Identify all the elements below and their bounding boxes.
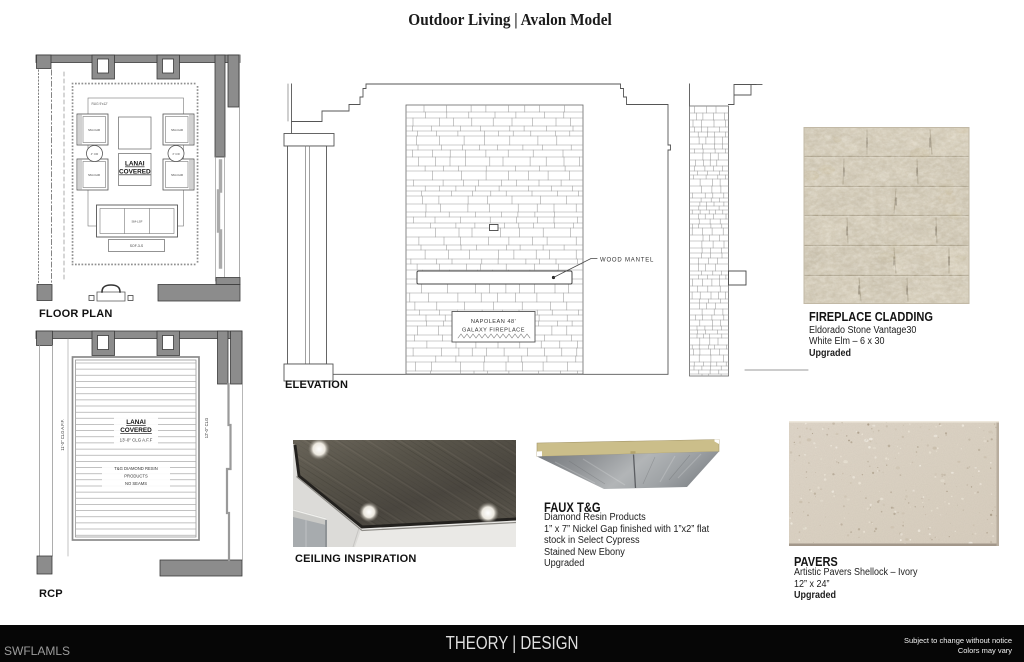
svg-text:NAPOLEAN 48': NAPOLEAN 48': [471, 319, 516, 325]
svg-text:SM-CHR: SM-CHR: [88, 128, 101, 132]
svg-text:RUG 9'x12': RUG 9'x12': [92, 102, 108, 106]
svg-text:11'-0" CLG A.F.F.: 11'-0" CLG A.F.F.: [60, 419, 65, 451]
svg-text:LANAI: LANAI: [126, 419, 146, 426]
svg-text:COVERED: COVERED: [119, 169, 151, 176]
svg-text:GALAXY FIREPLACE: GALAXY FIREPLACE: [462, 328, 525, 334]
svg-text:SOF-3-S: SOF-3-S: [130, 244, 144, 248]
svg-text:4" CIR: 4" CIR: [91, 152, 99, 156]
svg-text:SM-CHR: SM-CHR: [171, 128, 184, 132]
svg-text:4" CIR: 4" CIR: [172, 152, 180, 156]
svg-text:WOOD MANTEL: WOOD MANTEL: [600, 258, 654, 264]
svg-text:SM-CHR: SM-CHR: [171, 173, 184, 177]
svg-text:13'-0" CLG A.F.F: 13'-0" CLG A.F.F: [120, 438, 153, 443]
svg-text:NO SEAMS: NO SEAMS: [125, 481, 147, 486]
svg-text:T&G DIAMOND RESIN: T&G DIAMOND RESIN: [114, 466, 158, 471]
svg-text:12'-0" CLG: 12'-0" CLG: [204, 418, 209, 438]
svg-text:SM-CHR: SM-CHR: [88, 173, 101, 177]
svg-text:LANAI: LANAI: [125, 161, 145, 168]
svg-text:COVERED: COVERED: [120, 427, 152, 434]
svg-text:SM-LSF: SM-LSF: [131, 220, 142, 224]
svg-text:PRODUCTS: PRODUCTS: [124, 474, 148, 479]
